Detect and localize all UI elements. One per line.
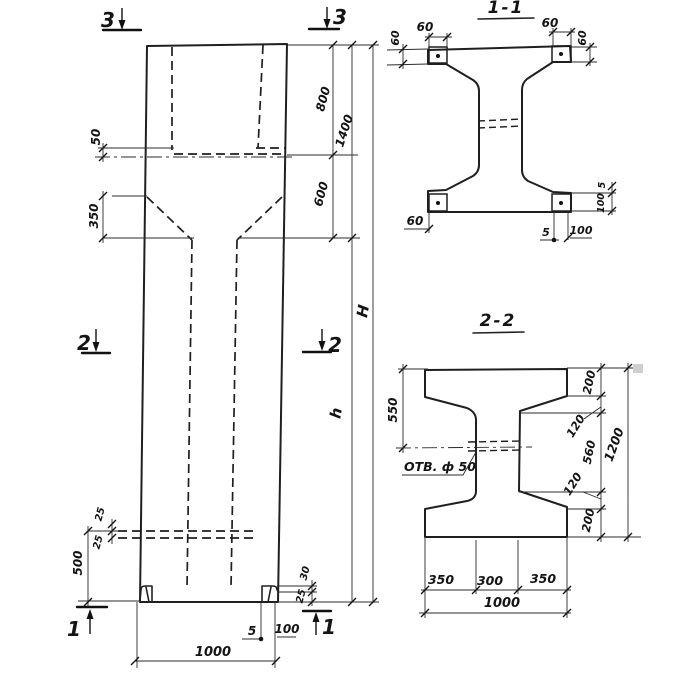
scan-artifact xyxy=(633,364,643,373)
elevation-view: 3 3 2 2 1 1 50 350 800 xyxy=(67,5,379,668)
dim-5-plate: 5 xyxy=(597,181,608,188)
dim-foot-5: 5 xyxy=(248,624,256,638)
dim-800: 800 xyxy=(313,85,333,113)
mark-3-left-label: 3 xyxy=(101,8,115,32)
dim-60-top-right: 60 xyxy=(542,16,559,30)
mark-1-left-label: 1 xyxy=(67,617,81,641)
section-1-1-view: 1-1 60 60 60 60 60 5 100 5 100 xyxy=(387,0,616,242)
anchor-dot-bottom-right xyxy=(559,201,563,205)
leader-dot xyxy=(259,637,264,642)
dim-H: H xyxy=(353,303,373,319)
section-mark-1-right: 1 xyxy=(303,611,336,639)
dim-200-bottom: 200 xyxy=(579,507,598,533)
leader-dot-1-1 xyxy=(552,238,557,243)
dim-5-bottom: 5 xyxy=(542,226,550,239)
mark-3-right-label: 3 xyxy=(333,5,347,29)
dim-120-top: 120 xyxy=(563,412,588,440)
dim-350-left: 350 xyxy=(428,572,454,587)
dim-foot-100: 100 xyxy=(274,622,299,636)
section-mark-1-left: 1 xyxy=(67,607,107,641)
column-drawing: 3 3 2 2 1 1 50 350 800 xyxy=(0,0,700,700)
dim-560: 560 xyxy=(580,439,599,465)
dim-200-top: 200 xyxy=(580,369,599,395)
dim-1400: 1400 xyxy=(332,113,356,149)
section-1-1-dim-ticks xyxy=(399,28,616,242)
dim-25-bottom: 25 xyxy=(91,534,105,550)
dim-60-right: 60 xyxy=(576,30,589,46)
section-2-2-centerline xyxy=(396,447,532,448)
dim-foot-30: 30 xyxy=(298,565,312,581)
section-2-2-view: 2-2 ОТВ. ф 50 550 200 120 560 120 200 12… xyxy=(386,311,643,618)
dim-1000-bottom: 1000 xyxy=(484,596,520,611)
mark-2-left-label: 2 xyxy=(77,331,91,355)
dim-600: 600 xyxy=(311,180,331,208)
dim-60-bottom-left: 60 xyxy=(407,214,424,228)
dim-1200: 1200 xyxy=(601,425,627,463)
anchor-dot-top-right xyxy=(559,52,563,56)
anchor-dot-bottom-left xyxy=(436,201,440,205)
dim-1000: 1000 xyxy=(195,645,231,660)
dim-100-bottom: 100 xyxy=(570,224,593,237)
section-mark-3-left: 3 xyxy=(101,8,141,32)
dim-500: 500 xyxy=(71,550,85,575)
section-2-2-title-underline xyxy=(473,332,524,333)
dim-550: 550 xyxy=(386,397,400,422)
section-2-2-title: 2-2 xyxy=(480,311,517,331)
section-1-1-outline xyxy=(428,46,571,212)
dim-100-plate: 100 xyxy=(596,193,607,213)
dim-60-left: 60 xyxy=(389,30,402,46)
dim-120-bottom: 120 xyxy=(560,470,585,498)
section-mark-2-left: 2 xyxy=(77,329,110,355)
dim-300: 300 xyxy=(477,573,503,588)
section-1-1-title-underline xyxy=(478,18,534,19)
anchor-dot-top-left xyxy=(436,54,440,58)
mark-2-right-label: 2 xyxy=(328,333,342,357)
column-outline xyxy=(140,44,287,602)
dim-25-top: 25 xyxy=(93,506,107,522)
technical-drawing-sheet: 3 3 2 2 1 1 50 350 800 xyxy=(0,0,700,700)
dim-350: 350 xyxy=(87,203,101,228)
column-feet xyxy=(140,586,277,602)
dim-h: h xyxy=(326,406,346,420)
section-2-2-outline xyxy=(425,369,567,537)
dim-350-right: 350 xyxy=(530,571,556,586)
section-1-1-title: 1-1 xyxy=(488,0,525,18)
hole-callout-label: ОТВ. ф 50 xyxy=(404,459,476,474)
section-mark-2-right: 2 xyxy=(303,329,342,357)
section-1-1-hole-lines xyxy=(478,119,522,128)
section-mark-3-right: 3 xyxy=(309,5,347,29)
dim-50: 50 xyxy=(89,129,103,146)
section-1-1-dim-lines xyxy=(387,28,616,242)
dim-60-top-left: 60 xyxy=(417,20,434,34)
mark-1-right-label: 1 xyxy=(322,615,336,639)
